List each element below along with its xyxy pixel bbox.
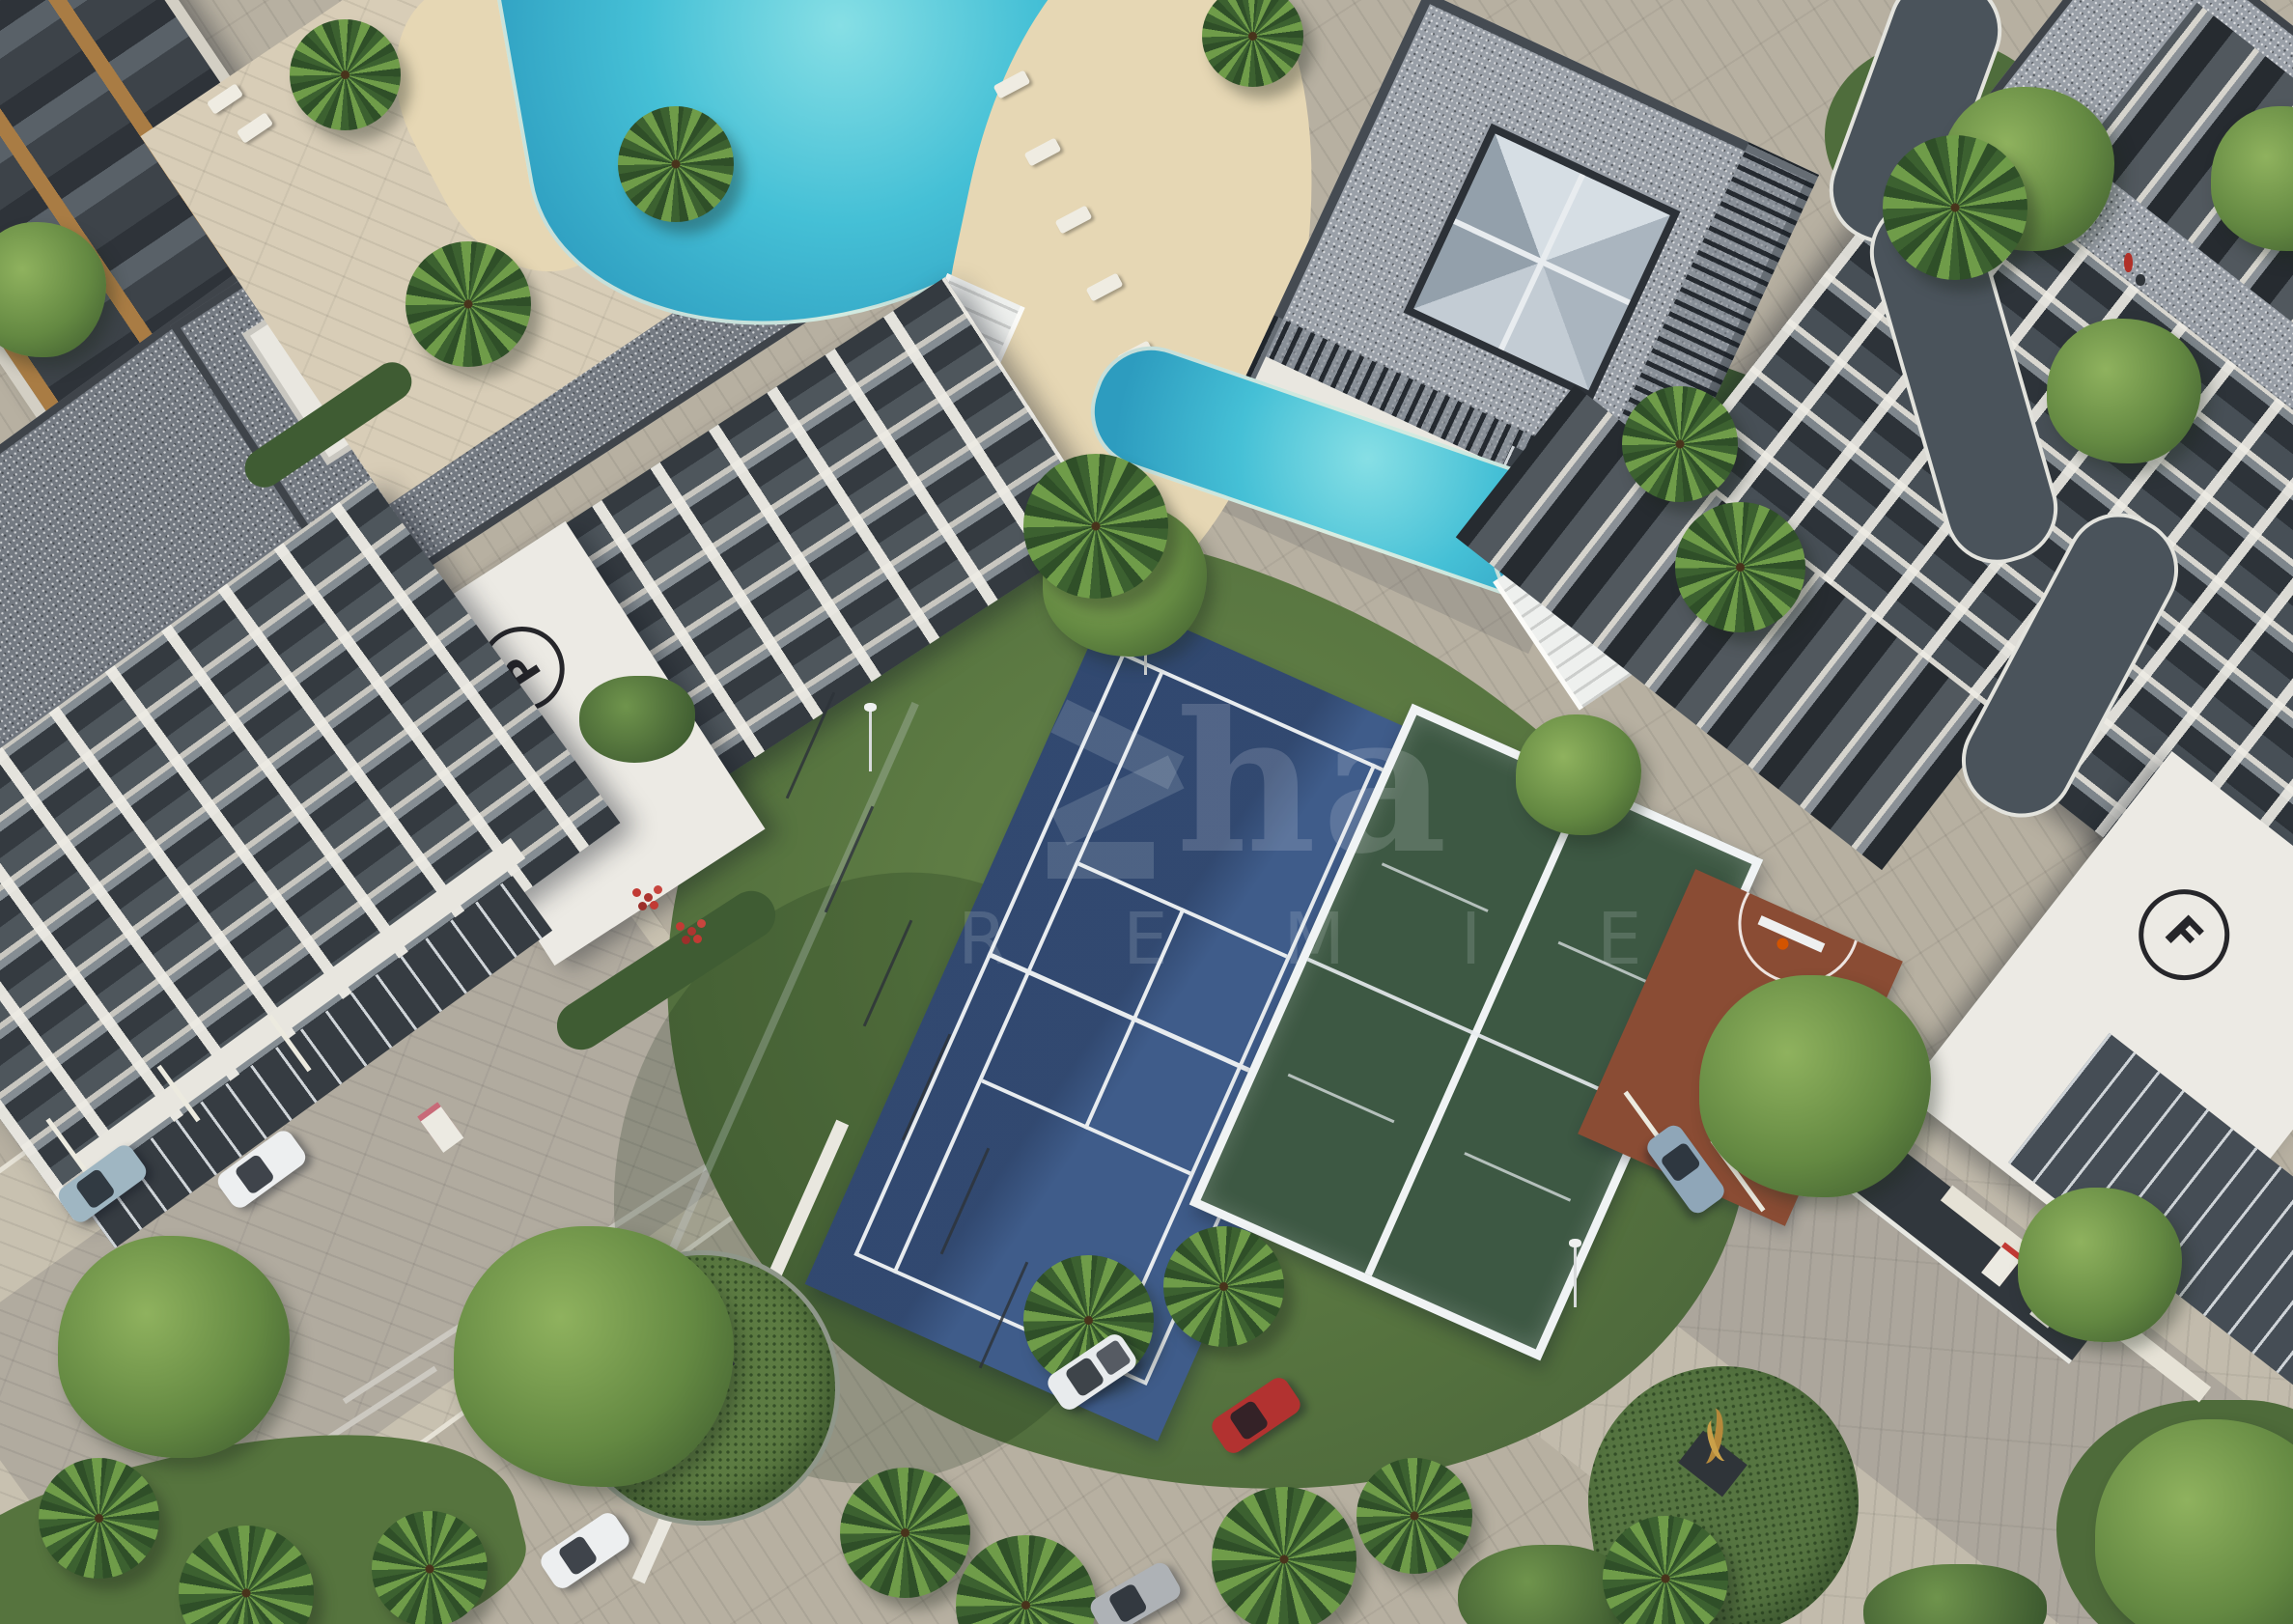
aerial-rendering: P F: [0, 0, 2293, 1624]
palm-tree: [405, 241, 531, 367]
tree: [2047, 319, 2201, 463]
watermark-glyph-bar: [1048, 842, 1154, 879]
flower-bed-red: [676, 922, 685, 931]
tree: [2018, 1188, 2182, 1342]
person: [2124, 253, 2133, 272]
palm-tree: [39, 1458, 159, 1579]
palm-tree: [1675, 502, 1805, 632]
light-pole: [1574, 1246, 1577, 1307]
padel-service-line: [1464, 1152, 1571, 1202]
tree: [1699, 975, 1931, 1197]
padel-net-line: [1307, 958, 1476, 1036]
stroller: [2136, 274, 2145, 286]
tree: [58, 1236, 290, 1458]
palm-tree: [618, 106, 734, 222]
skylight-mullion: [1498, 173, 1585, 350]
palm-tree: [1023, 454, 1168, 599]
palm-tree: [1212, 1487, 1356, 1624]
palm-tree: [1163, 1226, 1284, 1347]
tree: [1516, 714, 1641, 835]
palm-tree: [372, 1511, 488, 1624]
light-pole: [869, 710, 872, 771]
palm-tree: [840, 1468, 970, 1598]
right-building-logo-letter: F: [2155, 906, 2214, 964]
palm-tree: [290, 19, 401, 130]
flower-bed-red: [632, 888, 641, 897]
right-building-logo: F: [2120, 871, 2248, 998]
padel-service-line: [1382, 862, 1489, 912]
palm-tree: [1356, 1458, 1472, 1574]
palm-tree: [1622, 386, 1738, 502]
tree: [454, 1226, 734, 1487]
padel-service-line: [1288, 1074, 1395, 1124]
palm-tree: [1883, 135, 2027, 280]
skylight-pyramid: [1403, 124, 1680, 401]
